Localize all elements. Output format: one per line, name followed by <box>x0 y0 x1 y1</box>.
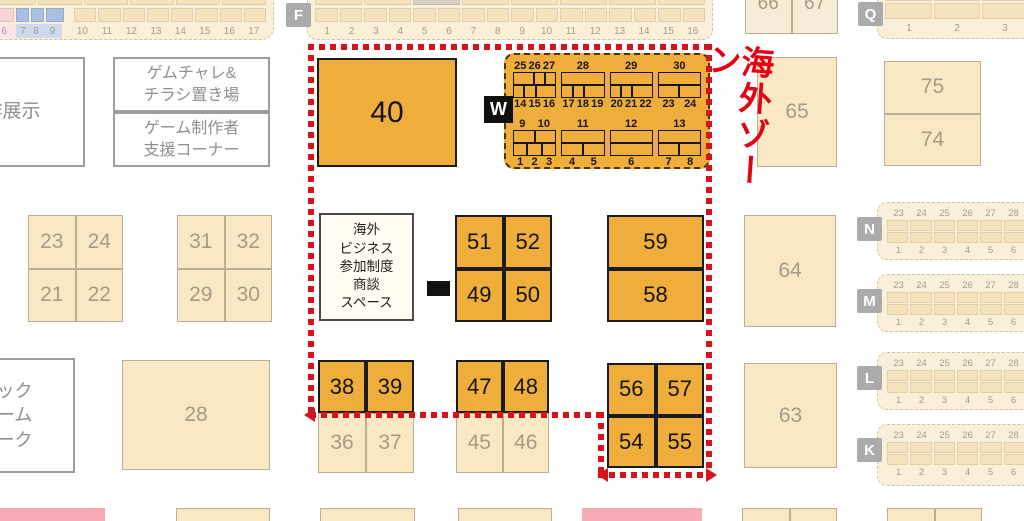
strip-cell-row <box>878 292 1024 303</box>
booth-number: 23 <box>662 98 674 110</box>
strip-number: 14 <box>632 24 656 38</box>
strip-number: 4 <box>956 316 979 328</box>
strip-cell-row <box>878 232 1024 243</box>
booth-number: 13 <box>673 118 685 130</box>
strip-cell <box>1004 220 1024 231</box>
big-game-park-box: ビックゲームパーク <box>0 358 75 473</box>
strip-number: 4 <box>956 394 979 406</box>
overseas-bottom-labels: 2324 <box>658 98 701 110</box>
booth-54: 54 <box>607 416 656 469</box>
zone-border-bottom <box>598 472 712 478</box>
strip-number: 5 <box>979 244 1002 256</box>
strip-cell <box>982 0 1024 1</box>
strip-number: 10 <box>70 24 94 38</box>
zone-border-mid <box>310 412 605 418</box>
strip-cell-row <box>878 454 1024 465</box>
booth-23: 23 <box>28 215 76 269</box>
new-work-exhibit-box: 新作展示 <box>0 57 85 167</box>
strip-number: 27 <box>979 429 1002 441</box>
booth-row-47-48: 4748 <box>456 360 549 413</box>
overseas-bottom-labels: 45 <box>561 156 604 168</box>
strip-cell <box>364 0 411 5</box>
strip-cell <box>980 442 1001 453</box>
section-label-f: F <box>286 3 311 27</box>
overseas-bottom-labels: 202122 <box>610 98 653 110</box>
strip-cell <box>462 8 485 22</box>
booth-number: 11 <box>577 118 589 130</box>
strip-cell <box>1004 232 1024 243</box>
strip-numbers-bottom: 123456 <box>878 466 1024 478</box>
booth-cell <box>513 130 535 143</box>
bottom-edge-booth <box>176 508 270 521</box>
overseas-grid-block: 2526271415162817181929202122302324 <box>513 60 701 110</box>
overseas-top-labels: 30 <box>658 60 701 72</box>
strip-cell <box>957 454 978 465</box>
overseas-top-labels: 13 <box>658 118 701 130</box>
creator-support-box: ゲーム制作者支援コーナー <box>113 112 270 167</box>
bottom-edge-pink-box <box>582 508 702 521</box>
strip-cell <box>957 382 978 393</box>
section-label-w: W <box>484 96 513 123</box>
strip-number: 11 <box>559 24 583 38</box>
booth-cell <box>658 85 680 98</box>
booth-24: 24 <box>76 215 124 269</box>
strip-number-row: 123 <box>878 21 1024 35</box>
overseas-cells <box>513 72 556 85</box>
biz-space-line: 商談 <box>353 276 380 294</box>
biz-space-line: ビジネス <box>340 240 394 258</box>
booth-number: 5 <box>591 156 597 168</box>
bottom-edge-booth-pair <box>887 508 982 521</box>
gamechalle-label-line: チラシ置き場 <box>144 85 240 107</box>
strip-number: 4 <box>956 244 979 256</box>
strip-number: 28 <box>1002 357 1024 369</box>
strip-numbers-bottom: 123456 <box>878 316 1024 328</box>
venue-floor-map: 67891011121314151617 F 12345678910111213… <box>0 0 1024 521</box>
overseas-booth-group: 910123 <box>513 118 556 168</box>
booth-number: 3 <box>546 156 552 168</box>
booth-66: 66 <box>745 0 792 34</box>
booth-number: 16 <box>543 98 555 110</box>
booth-number: 27 <box>543 60 555 72</box>
booth-strip-n: 232425262728123456 <box>877 202 1024 260</box>
booth-37: 37 <box>366 413 414 473</box>
booth-number: 7 <box>666 156 672 168</box>
strip-cell <box>980 220 1001 231</box>
booth-49: 49 <box>455 269 504 323</box>
booth-75-74: 75 74 <box>884 61 981 166</box>
new-work-exhibit-label: 新作展示 <box>0 99 41 125</box>
booth-cell <box>561 85 572 98</box>
strip-cell <box>887 292 908 303</box>
strip-number: 6 <box>1002 244 1024 256</box>
overseas-cells <box>561 143 604 156</box>
booth-cell <box>658 72 701 85</box>
booth-cell <box>610 72 653 85</box>
strip-number: 6 <box>1002 316 1024 328</box>
strip-cell <box>910 232 931 243</box>
booth-number: 29 <box>625 60 637 72</box>
zone-border-arrow <box>297 408 315 422</box>
support-label-line: 支援コーナー <box>143 140 239 162</box>
support-label-line: ゲーム制作者 <box>144 118 240 140</box>
strip-cell <box>910 292 931 303</box>
strip-cell <box>957 370 978 381</box>
overseas-booth-group: 1145 <box>561 118 604 168</box>
booth-50: 50 <box>504 269 553 323</box>
strip-number: 1 <box>315 24 339 38</box>
entrance-marker <box>427 281 450 296</box>
booth-22: 22 <box>76 269 124 323</box>
strip-cell <box>980 382 1001 393</box>
overseas-cells <box>610 85 653 98</box>
strip-number: 23 <box>887 357 910 369</box>
booth-strip-top-left: 67891011121314151617 <box>0 0 274 40</box>
strip-cell <box>910 370 931 381</box>
strip-cell <box>222 0 266 5</box>
strip-number: 28 <box>1002 207 1024 219</box>
booth-grid-56-57-54-55: 56575455 <box>607 363 704 468</box>
strip-cell <box>980 292 1001 303</box>
booth-36: 36 <box>318 413 366 473</box>
booth-cell <box>632 85 653 98</box>
strip-number: 16 <box>681 24 705 38</box>
strip-cell <box>340 8 363 22</box>
overseas-top-labels: 28 <box>561 60 604 72</box>
section-label-k: K <box>857 438 882 462</box>
strip-number: 1 <box>887 244 910 256</box>
strip-cell <box>957 304 978 315</box>
strip-cell <box>934 232 955 243</box>
strip-cell <box>982 3 1024 19</box>
strip-number: 6 <box>437 24 461 38</box>
strip-cell <box>887 454 908 465</box>
overseas-zone-title: 海外ゾーン <box>697 42 773 224</box>
booth-cell <box>513 85 524 98</box>
booth-number: 25 <box>514 60 526 72</box>
overseas-bottom-labels: 171819 <box>561 98 604 110</box>
overseas-cells <box>658 130 701 143</box>
strip-number: 8 <box>486 24 510 38</box>
overseas-booth-group: 1378 <box>658 118 701 168</box>
booth-cell <box>536 85 557 98</box>
overseas-business-space-box: 海外ビジネス参加制度商談スペース <box>319 213 414 321</box>
overseas-cells <box>561 130 604 143</box>
booth-46: 46 <box>503 413 550 473</box>
strip-number: 5 <box>979 394 1002 406</box>
strip-cell <box>957 292 978 303</box>
strip-numbers-top: 232425262728 <box>878 429 1024 441</box>
strip-cell <box>123 8 145 22</box>
booth-row-36-37: 3637 <box>318 413 414 473</box>
strip-number: 3 <box>364 24 388 38</box>
strip-number: 13 <box>608 24 632 38</box>
strip-cell <box>1004 442 1024 453</box>
strip-number: 2 <box>910 316 933 328</box>
strip-cell-row <box>308 8 712 22</box>
strip-cell-row <box>878 220 1024 231</box>
strip-cell-row <box>878 3 1024 19</box>
section-label-l: L <box>857 366 882 390</box>
strip-cell <box>389 8 412 22</box>
booth-cell <box>545 72 556 85</box>
booth-32: 32 <box>225 215 273 269</box>
booth-strip-q: 123 <box>877 0 1024 39</box>
strip-number: 7 <box>16 24 29 38</box>
strip-cell <box>887 304 908 315</box>
section-label-n: N <box>857 217 882 241</box>
strip-cell <box>934 370 955 381</box>
booth-row-38-39: 3839 <box>318 360 414 413</box>
overseas-cells <box>561 72 604 85</box>
strip-cell <box>957 232 978 243</box>
strip-number: 23 <box>887 429 910 441</box>
strip-numbers-bottom: 123456 <box>878 394 1024 406</box>
strip-cell <box>887 382 908 393</box>
booth-29: 29 <box>177 269 225 323</box>
booth-cell <box>573 85 584 98</box>
strip-cell <box>16 8 29 22</box>
strip-cell <box>609 8 632 22</box>
strip-cell <box>1004 292 1024 303</box>
strip-number: 10 <box>534 24 558 38</box>
strip-cell <box>1004 382 1024 393</box>
strip-cell <box>634 8 657 22</box>
bottom-edge-booth-pair <box>742 508 837 521</box>
strip-number: 26 <box>956 357 979 369</box>
overseas-top-labels: 29 <box>610 60 653 72</box>
strip-cell <box>887 220 908 231</box>
booth-cell <box>621 85 632 98</box>
strip-cell <box>244 8 266 22</box>
booth-40: 40 <box>317 58 457 167</box>
overseas-cells <box>610 143 653 156</box>
biz-space-line: スペース <box>340 294 392 312</box>
overseas-bottom-labels: 123 <box>513 156 556 168</box>
strip-cell <box>910 220 931 231</box>
strip-number: 8 <box>30 24 43 38</box>
overseas-cells <box>658 72 701 85</box>
strip-cell <box>0 0 36 5</box>
strip-number: 25 <box>933 429 956 441</box>
overseas-cells <box>513 130 556 143</box>
strip-cell <box>934 220 955 231</box>
booth-number: 30 <box>673 60 685 72</box>
booth-number: 1 <box>517 156 523 168</box>
strip-cell <box>910 442 931 453</box>
overseas-booth-group: 302324 <box>658 60 701 110</box>
strip-cell <box>38 0 82 5</box>
strip-cell-row <box>878 370 1024 381</box>
big-game-park-line: パーク <box>0 428 33 452</box>
booth-57: 57 <box>656 363 705 416</box>
zone-border-left <box>308 44 314 418</box>
booth-cell <box>584 85 605 98</box>
strip-number: 6 <box>1002 394 1024 406</box>
strip-cell <box>887 370 908 381</box>
strip-number: 14 <box>168 24 192 38</box>
booth-grid-23-24-21-22: 23242122 <box>28 215 123 322</box>
overseas-booth-group: 28171819 <box>561 60 604 110</box>
strip-number: 7 <box>461 24 485 38</box>
booth-number: 2 <box>532 156 538 168</box>
strip-cell-row <box>878 0 1024 1</box>
booth-number: 8 <box>687 156 693 168</box>
booth-30: 30 <box>225 269 273 323</box>
booth-52: 52 <box>504 215 553 269</box>
overseas-cells <box>658 85 701 98</box>
strip-cell <box>934 3 981 19</box>
booth-cell <box>527 143 541 156</box>
booth-number: 26 <box>528 60 540 72</box>
zone-border-arrow <box>590 468 608 482</box>
strip-number: 27 <box>979 279 1002 291</box>
strip-cell <box>413 8 436 22</box>
booth-number: 28 <box>577 60 589 72</box>
booth-31: 31 <box>177 215 225 269</box>
strip-cell <box>315 8 338 22</box>
strip-number: 3 <box>933 466 956 478</box>
booth-55: 55 <box>656 416 705 469</box>
strip-number: 13 <box>144 24 168 38</box>
strip-number: 5 <box>413 24 437 38</box>
strip-number: 23 <box>887 207 910 219</box>
big-game-park-line: ビック <box>0 379 33 403</box>
bottom-edge-booth <box>458 508 552 521</box>
booth-cell <box>561 143 583 156</box>
strip-cell-row <box>878 442 1024 453</box>
booth-cell <box>561 130 604 143</box>
booth-75: 75 <box>884 61 981 114</box>
booth-cell <box>790 508 838 521</box>
strip-cell <box>315 0 362 5</box>
strip-number-row: 67891011121314151617 <box>0 24 273 38</box>
booth-cell <box>513 143 527 156</box>
strip-cell <box>1004 370 1024 381</box>
strip-numbers-top: 232425262728 <box>878 357 1024 369</box>
strip-number-row: 12345678910111213141516 <box>308 24 712 38</box>
strip-number: 27 <box>979 207 1002 219</box>
biz-space-line: 海外 <box>353 221 380 239</box>
booth-cell <box>658 143 680 156</box>
booth-67: 67 <box>792 0 839 34</box>
overseas-cells <box>610 130 653 143</box>
strip-cell <box>934 442 955 453</box>
booth-number: 18 <box>577 98 589 110</box>
strip-number: 4 <box>956 466 979 478</box>
booth-number: 12 <box>625 118 637 130</box>
booth-cell <box>610 143 653 156</box>
booth-59: 59 <box>607 215 704 269</box>
booth-21: 21 <box>28 269 76 323</box>
booth-cell <box>513 72 534 85</box>
strip-cell <box>585 8 608 22</box>
overseas-top-labels: 12 <box>610 118 653 130</box>
overseas-booth-group: 252627141516 <box>513 60 556 110</box>
strip-cell <box>885 3 932 19</box>
strip-cell <box>84 0 128 5</box>
strip-number: 1 <box>887 316 910 328</box>
strip-numbers-top: 232425262728 <box>878 207 1024 219</box>
bottom-edge-booth <box>320 508 415 521</box>
strip-number: 23 <box>887 279 910 291</box>
strip-cell <box>220 8 242 22</box>
bottom-edge-pink-box <box>0 508 105 521</box>
booth-number: 19 <box>591 98 603 110</box>
booth-number: 6 <box>628 156 634 168</box>
booth-number: 20 <box>611 98 623 110</box>
strip-number: 3 <box>933 394 956 406</box>
booth-number: 9 <box>519 118 525 130</box>
booth-number: 17 <box>562 98 574 110</box>
strip-numbers-bottom: 123456 <box>878 244 1024 256</box>
booth-66-67: 66 67 <box>745 0 838 34</box>
strip-number: 1 <box>885 21 933 35</box>
strip-cell <box>195 8 217 22</box>
strip-cell <box>487 8 510 22</box>
booth-number: 14 <box>514 98 526 110</box>
strip-cell <box>887 232 908 243</box>
strip-numbers-top: 232425262728 <box>878 279 1024 291</box>
strip-number: 27 <box>979 357 1002 369</box>
booth-grid-51-52-49-50: 51524950 <box>455 215 552 322</box>
strip-cell-row <box>0 8 273 22</box>
strip-number: 2 <box>933 21 981 35</box>
strip-cell <box>560 0 607 5</box>
overseas-top-labels: 11 <box>561 118 604 130</box>
strip-cell <box>934 0 981 1</box>
strip-cell <box>0 8 14 22</box>
overseas-cells <box>561 85 604 98</box>
booth-cell <box>679 143 701 156</box>
strip-cell <box>46 8 64 22</box>
booth-strip-m: 232425262728123456 <box>877 274 1024 332</box>
strip-number: 9 <box>510 24 534 38</box>
strip-number: 15 <box>656 24 680 38</box>
booth-56: 56 <box>607 363 656 416</box>
strip-cell-row <box>878 304 1024 315</box>
booth-cell <box>658 130 701 143</box>
strip-cell <box>934 382 955 393</box>
overseas-cells <box>513 85 556 98</box>
strip-cell <box>609 0 656 5</box>
booth-cell <box>679 85 701 98</box>
strip-number: 2 <box>910 466 933 478</box>
booth-74: 74 <box>884 114 981 167</box>
zone-border-arrow <box>706 468 724 482</box>
strip-cell <box>980 454 1001 465</box>
strip-number: 17 <box>242 24 266 38</box>
overseas-top-labels: 252627 <box>513 60 556 72</box>
booth-59-58: 59 58 <box>607 215 704 322</box>
booth-strip-l: 232425262728123456 <box>877 352 1024 410</box>
strip-cell <box>887 442 908 453</box>
strip-number: 6 <box>1002 466 1024 478</box>
section-label-m: M <box>857 289 882 313</box>
strip-number: 9 <box>43 24 63 38</box>
strip-number: 2 <box>910 394 933 406</box>
strip-number: 3 <box>933 316 956 328</box>
overseas-booth-group: 29202122 <box>610 60 653 110</box>
strip-cell <box>171 8 193 22</box>
strip-cell <box>658 8 681 22</box>
strip-cell <box>980 304 1001 315</box>
strip-number: 28 <box>1002 279 1024 291</box>
booth-number: 21 <box>625 98 637 110</box>
strip-number: 1 <box>887 394 910 406</box>
booth-strip-f: 12345678910111213141516 <box>307 0 713 40</box>
overseas-booth-grid: 2526271415162817181929202122302324 91012… <box>504 53 710 169</box>
